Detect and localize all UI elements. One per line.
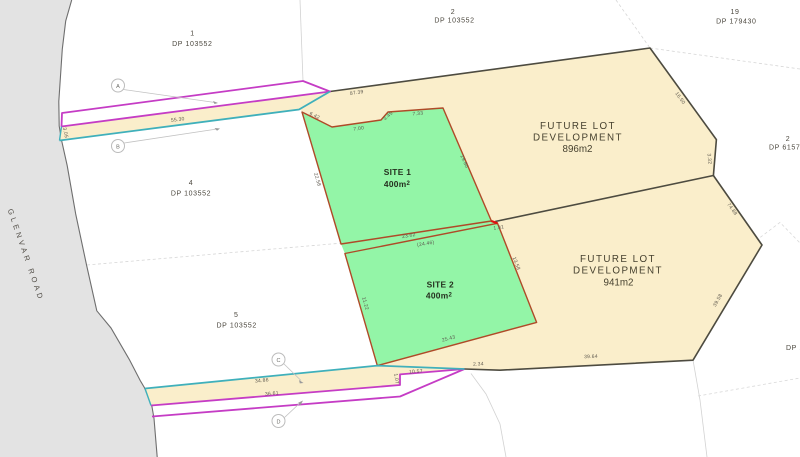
svg-text:941m2: 941m2 [604, 278, 634, 289]
svg-text:DP 61570: DP 61570 [769, 145, 800, 152]
svg-text:19: 19 [731, 9, 740, 16]
svg-text:DEVELOPMENT: DEVELOPMENT [533, 133, 623, 144]
svg-text:5: 5 [234, 312, 239, 319]
svg-text:4: 4 [189, 180, 194, 187]
svg-text:DP 1: DP 1 [786, 345, 800, 352]
svg-text:B: B [116, 145, 120, 151]
svg-text:D: D [277, 420, 281, 426]
svg-text:400m2: 400m2 [426, 291, 453, 301]
svg-text:FUTURE LOT: FUTURE LOT [540, 121, 616, 132]
svg-text:400m2: 400m2 [384, 179, 411, 189]
svg-text:SITE 2: SITE 2 [427, 280, 454, 290]
svg-text:DP 103552: DP 103552 [172, 41, 212, 48]
svg-text:C: C [277, 358, 281, 364]
svg-text:39.64: 39.64 [584, 354, 598, 360]
svg-text:DP 179430: DP 179430 [716, 18, 756, 25]
svg-text:A: A [116, 84, 120, 90]
svg-text:2: 2 [786, 136, 791, 143]
svg-text:DEVELOPMENT: DEVELOPMENT [573, 266, 663, 277]
svg-text:2.34: 2.34 [473, 361, 484, 368]
svg-text:DP 103552: DP 103552 [434, 18, 474, 25]
svg-text:7.33: 7.33 [412, 111, 423, 118]
svg-text:2: 2 [451, 9, 456, 16]
svg-text:896m2: 896m2 [563, 144, 593, 155]
svg-text:FUTURE LOT: FUTURE LOT [580, 254, 656, 265]
svg-text:SITE 1: SITE 1 [384, 167, 411, 177]
svg-text:3.32: 3.32 [705, 153, 712, 164]
svg-text:DP 103552: DP 103552 [171, 190, 211, 197]
svg-text:1: 1 [190, 31, 195, 38]
svg-text:34.86: 34.86 [255, 377, 269, 384]
svg-text:10.57: 10.57 [409, 369, 423, 376]
svg-text:36.61: 36.61 [265, 390, 279, 397]
svg-text:DP 103552: DP 103552 [217, 323, 257, 330]
